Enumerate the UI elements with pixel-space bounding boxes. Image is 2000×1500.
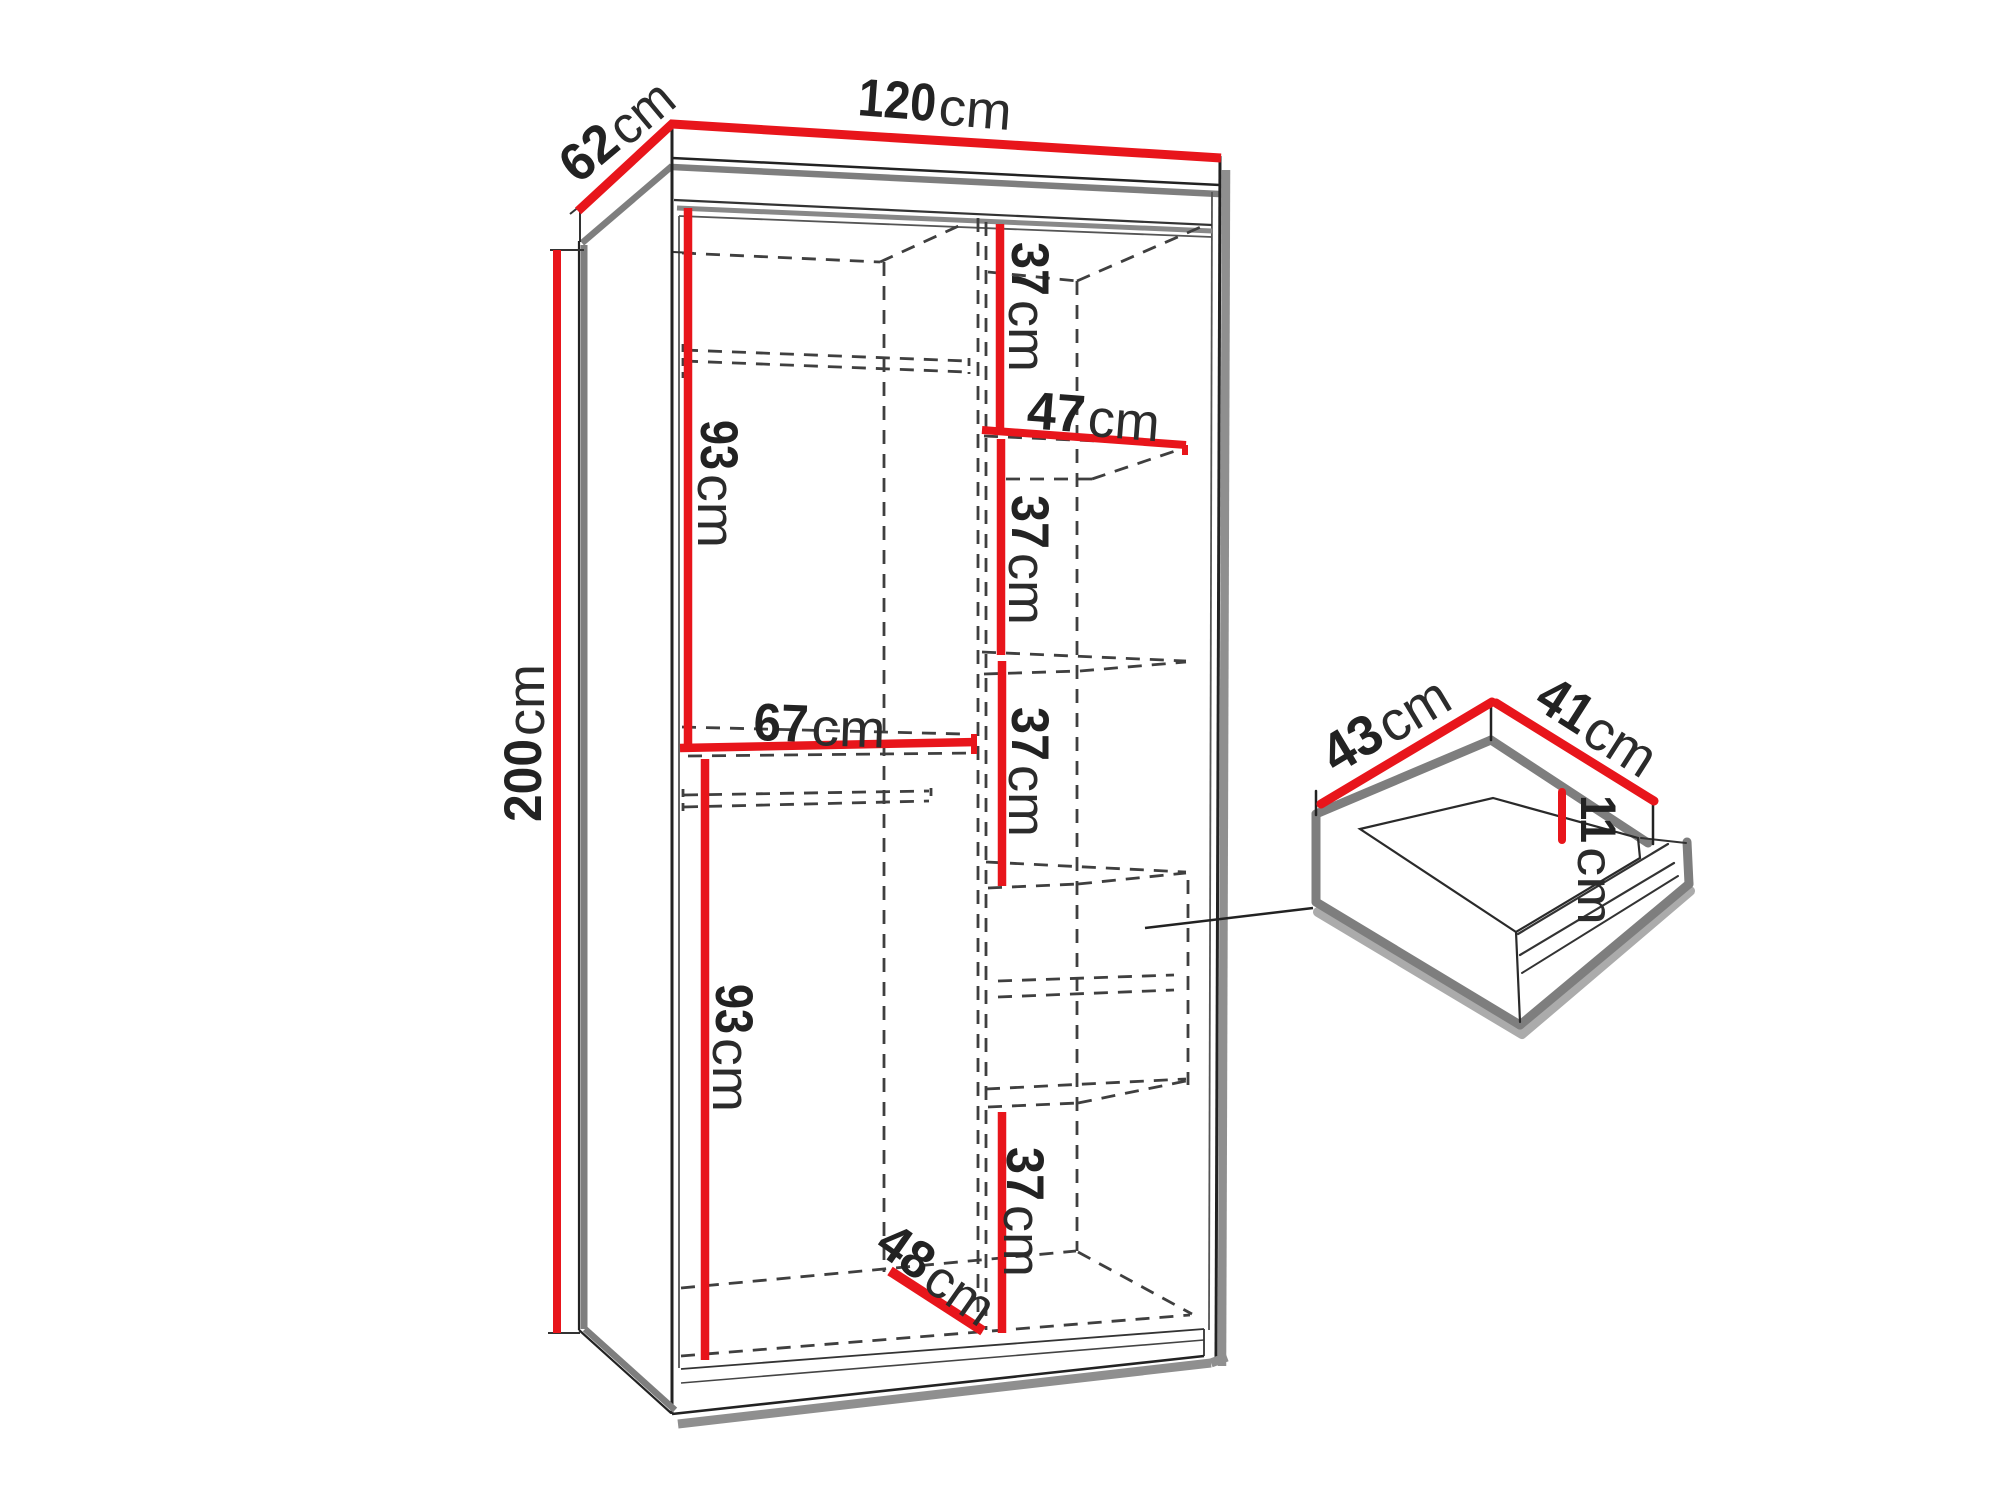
svg-text:37: 37 bbox=[1000, 242, 1059, 296]
svg-text:47: 47 bbox=[1025, 381, 1087, 444]
svg-text:cm: cm bbox=[997, 765, 1056, 837]
svg-text:37: 37 bbox=[1000, 707, 1059, 761]
svg-text:cm: cm bbox=[992, 1205, 1051, 1277]
svg-text:11: 11 bbox=[1570, 795, 1626, 843]
svg-text:200: 200 bbox=[494, 739, 553, 822]
svg-text:93: 93 bbox=[689, 420, 748, 470]
svg-text:cm: cm bbox=[1086, 389, 1162, 453]
svg-text:cm: cm bbox=[701, 1038, 760, 1112]
svg-text:cm: cm bbox=[497, 664, 556, 736]
svg-text:120: 120 bbox=[856, 68, 938, 133]
svg-text:37: 37 bbox=[995, 1147, 1054, 1201]
svg-text:37: 37 bbox=[1000, 495, 1059, 549]
svg-text:67: 67 bbox=[753, 693, 810, 754]
svg-text:cm: cm bbox=[810, 698, 886, 760]
svg-text:cm: cm bbox=[937, 77, 1014, 142]
svg-text:93: 93 bbox=[704, 984, 763, 1034]
svg-text:cm: cm bbox=[686, 474, 745, 548]
svg-text:cm: cm bbox=[997, 553, 1056, 625]
svg-text:cm: cm bbox=[1567, 847, 1623, 925]
svg-text:cm: cm bbox=[997, 300, 1056, 372]
